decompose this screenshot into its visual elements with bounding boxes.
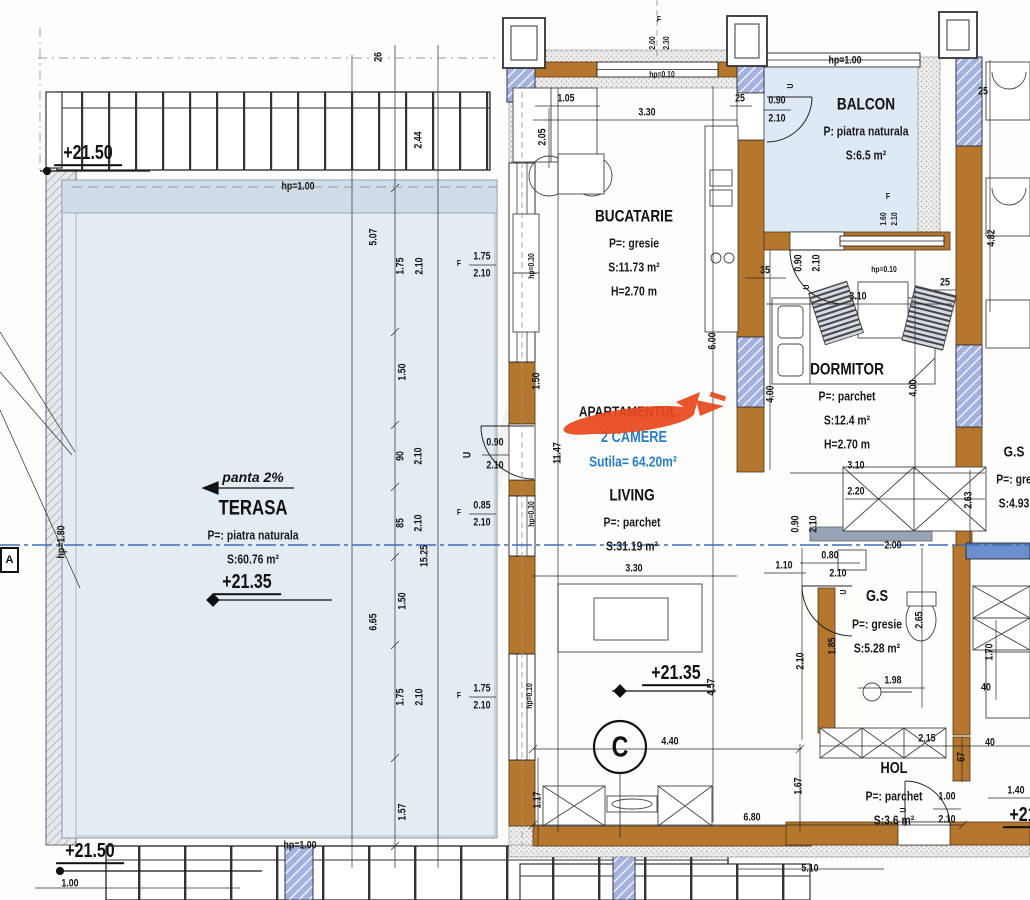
dim-label: 4.82 [987,227,998,248]
dim-label: 2.10 [471,701,492,712]
room-line-balcon: S:6.5 m² [841,149,892,162]
room-title-living: LIVING [604,487,661,504]
dim-label: hp=0.10 [646,70,678,79]
room-line-gs-center: P=: gresie [846,618,909,631]
dim-label: hp=0.10 [868,265,900,274]
dim-label: 35 [759,266,771,277]
dim-label: 2.10 [414,512,425,533]
dim-label: 1.75 [396,255,407,276]
dim-label: 2.10 [414,445,425,466]
dim-label: F [456,691,461,700]
dim-label: 2.10 [415,255,426,276]
room-title-dormitor: DORMITOR [801,361,893,378]
dim-label: 4.00 [909,377,920,398]
dim-label: 1.00 [59,879,80,890]
dim-label: F [656,15,661,24]
room-line-terasa: P=: piatra naturala [196,529,310,542]
room-title-gs-center: G.S [863,589,891,605]
dim-label: 2.10 [471,269,492,280]
dim-label: 2.10 [809,513,820,534]
room-line-hol: S:3.6 m² [869,814,920,827]
dim-label: 1.85 [828,635,839,656]
dim-label: 1.75 [396,686,407,707]
room-line-gs-right: P=: gre [992,473,1030,486]
dim-label: 1.05 [555,94,576,105]
dim-label: 0.85 [471,501,492,512]
elevation-label: +21.35 [213,572,281,595]
dim-label: 0.90 [791,513,802,534]
dim-label: 2.10 [415,686,426,707]
dim-label: 40 [984,738,996,749]
room-title-hol: HOL [877,761,911,777]
dim-label: 1.17 [533,789,544,810]
dim-label: 1.10 [773,561,794,572]
room-line-bucatarie: P=: gresie [603,237,666,250]
room-line-dormitor: S:12.4 m² [818,414,876,427]
dim-label: hp=0.30 [527,498,536,530]
elevation-label: +21.35 [642,663,710,686]
dim-label: 2.15 [916,734,937,745]
dim-label: 1.50 [398,590,409,611]
dim-label: 1.50 [398,361,409,382]
grid-label-a: A [0,547,19,573]
dim-label: 1.75 [471,684,492,695]
dim-label: hp=0.10 [525,680,534,712]
dim-label: 0.90 [484,438,505,449]
dim-label: 6.65 [369,611,380,632]
dim-label: 2.10 [796,650,807,671]
dim-label: 0.80 [819,551,840,562]
room-title-bucatarie: BUCATARIE [585,208,683,225]
dim-label: 1.57 [398,801,409,822]
room-line-dormitor: P=: parchet [811,390,882,403]
dim-label: 6.00 [708,330,719,351]
dim-label: 2.65 [915,609,926,630]
dim-label: 25 [977,87,989,98]
dim-label: 2.63 [964,489,975,510]
room-title-terasa: TERASA [210,498,296,519]
dim-label: 2.20 [845,487,866,498]
grid-label-c: C [610,734,631,763]
dim-label: 3.30 [623,564,644,575]
red-logo-scribble [552,386,737,442]
dim-label: 1.40 [1005,786,1026,797]
room-line-bucatarie: S:11.73 m² [602,261,666,274]
dim-label: hp=1.80 [57,521,68,562]
dim-label: U [802,284,811,290]
dim-label: 67 [957,751,968,763]
dim-label: 2.00 [648,35,657,52]
apartment-area-label: Sutila= 64.20m² [578,455,688,470]
dim-label: 2.30 [662,35,671,52]
room-line-hol: P=: parchet [858,790,929,803]
room-line-balcon: P: piatra naturala [813,125,919,138]
dim-label: F [456,259,461,268]
dim-label: 2.10 [471,518,492,529]
dim-label: 2.10 [936,815,957,826]
dim-label: 2.00 [882,541,903,552]
dim-label: F [885,192,890,201]
elevation-label: +21.50 [56,841,124,864]
dim-label: 85 [396,517,407,529]
dim-label: 3.10 [845,461,866,472]
dim-label: F [456,508,461,517]
dim-label: 25 [734,94,746,105]
dim-label: 2.44 [414,129,425,150]
dim-label: 1.60 [879,211,888,228]
dim-label: 2.10 [766,114,787,125]
dim-label: 26 [374,51,385,63]
dim-label: 1.00 [936,792,957,803]
dim-label: U [786,83,795,89]
dim-label: 3.30 [636,108,657,119]
elevation-label: +21 [1003,805,1030,828]
dim-label: 0.90 [794,252,805,273]
dim-label: 2.10 [827,569,848,580]
dim-label: 11.47 [553,440,564,467]
dim-label: 1.98 [882,676,903,687]
dim-label: 1.70 [985,641,996,662]
room-line-bucatarie: H=2.70 m [605,285,662,298]
room-line-dormitor: H=2.70 m [818,438,875,451]
dim-label: 4.00 [766,383,777,404]
room-line-gs-center: S:5.28 m² [848,642,906,655]
dim-label: 2.10 [812,252,823,273]
elevation-label: +21.50 [54,143,122,166]
room-title-gs-right: G.S [1001,445,1027,460]
dim-label: 1.75 [471,252,492,263]
dim-label: 6.80 [741,813,762,824]
dim-label: 15.25 [420,542,431,570]
dim-label: hp=0.30 [527,250,536,282]
room-line-gs-right: S:4.93 [995,497,1030,510]
dim-label: 5.10 [799,864,820,875]
dim-label: 2.05 [538,126,549,147]
dim-label: hp=1.00 [279,841,320,852]
dim-label: 3.10 [847,292,868,303]
dim-label: 0.90 [766,96,787,107]
dim-label: 2.10 [484,461,505,472]
dim-label: 5.07 [369,226,380,247]
slope-label: panta 2% [222,469,283,485]
room-title-balcon: BALCON [830,96,903,113]
dim-label: 25 [939,278,951,289]
dim-label: 90 [396,450,407,462]
dim-label: hp=1.00 [824,56,865,67]
room-line-terasa: S:60.76 m² [220,553,285,566]
dim-label: 1.67 [794,775,805,796]
dim-label: 4.40 [659,737,680,748]
dim-label: 40 [980,683,992,694]
labels-layer: APARTAMENTUL 2 CAMERE Sutila= 64.20m² pa… [0,0,1030,900]
dim-label: hp=1.00 [277,182,318,193]
room-line-living: P=: parchet [596,516,667,529]
dim-label: U [839,589,848,595]
dim-label: 2.10 [890,211,899,228]
floor-plan: TM [0,0,1030,900]
dim-label: 1.50 [532,370,543,391]
dim-label: U [463,451,474,459]
room-line-living: S:31.19 m² [599,540,664,553]
